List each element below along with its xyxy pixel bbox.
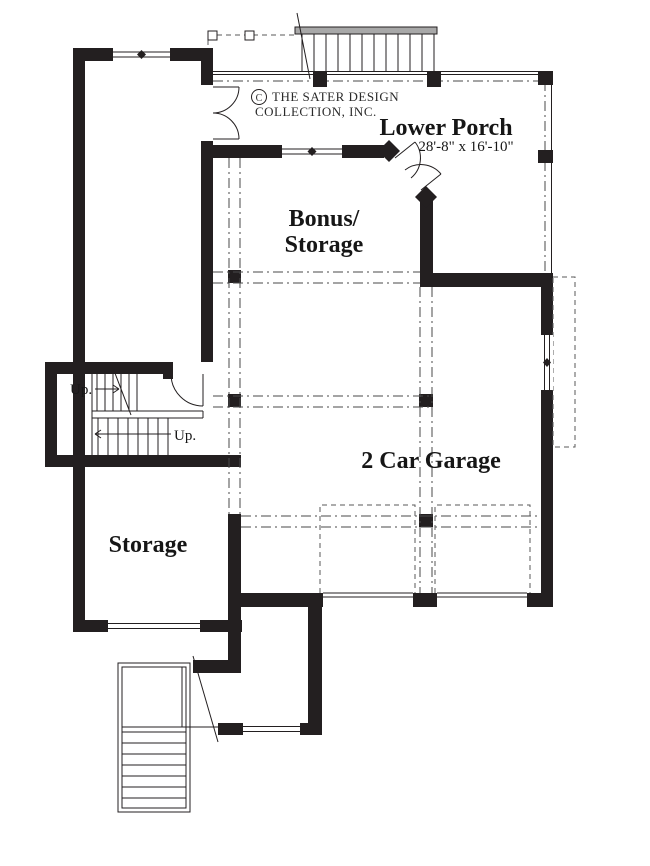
copyright-line2: COLLECTION, INC. [255,104,377,119]
garage-bay-outline [320,505,415,593]
porch-corner-post [538,71,553,85]
window-storage-bottom [108,620,200,632]
wall-end-diamond [415,186,437,208]
deck-post [245,31,254,40]
wall-end-diamond [378,140,400,162]
porch-post [538,150,553,163]
wall-porch-left-lower [201,141,213,362]
up-arrow-lower [95,430,171,438]
wall-garage-right-upper [541,273,553,335]
deck-dashed-outline [208,31,295,48]
wall-garage-bottom-left [228,593,323,607]
wall-porch-left-upper [201,48,213,85]
wall-garage-top [420,273,553,287]
up-arrow-upper [95,385,119,393]
deck-post [208,31,217,40]
window-wing-top [113,48,170,61]
stair-treads [122,743,186,798]
wall-storage-east [228,514,241,672]
floor-plan-drawing: Up. Up. C THE SATER DESIGN COLLECTION, I… [0,0,650,866]
porch-french-door [213,87,239,139]
columns [228,270,433,527]
lower-flight-treads [98,418,168,455]
interior-stairwell: Up. Up. [70,368,203,455]
stair-outline [118,663,190,812]
porch-post [313,71,327,87]
up-label-lower: Up. [174,428,196,444]
wall-bonus-top-right [342,145,384,158]
porch-post [427,71,441,87]
landing-rail [92,411,203,418]
wall-wing-left [73,48,85,632]
wall-garage-right-lower [541,390,553,607]
room-label-storage: Storage [109,532,188,558]
porch-entry-stair [295,13,437,79]
wall-stairwell-top [45,362,168,374]
copyright-symbol: C [256,93,263,104]
room-label-lower-porch: Lower Porch [379,115,512,141]
garage-bay-outline [435,505,530,593]
room-dims-lower-porch: 28'-8" x 16'-10" [418,139,513,155]
side-pad-outline [553,277,575,447]
copyright-line1: THE SATER DESIGN [272,89,399,104]
exterior-stair [118,663,218,812]
stair-break-line [297,13,310,79]
floor-plan-page: Up. Up. C THE SATER DESIGN COLLECTION, I… [0,0,650,866]
room-label-bonus-line1: Bonus/ [289,206,360,232]
room-label-bonus-line2: Storage [285,232,364,258]
wall-bonus-top-left [201,145,282,158]
wall-stairwell-bottom [45,455,241,467]
wall-vestibule-right [308,607,322,735]
room-label-garage: 2 Car Garage [361,448,501,474]
labels: C THE SATER DESIGN COLLECTION, INC. Lowe… [109,89,514,558]
column-grid-lines [213,158,541,593]
window-vestibule-bottom [243,723,300,735]
up-label-upper: Up. [70,382,92,398]
wall-garage-door-post [413,593,437,607]
window-garage-right [541,335,553,390]
wall-stairwell-left [45,362,57,467]
garage-door-bays [320,277,575,593]
window-bonus-top [282,145,342,158]
wall-stair-stub [193,660,241,673]
stairwell-door [171,374,203,406]
wall-vestibule-bottom-right [300,723,322,735]
wall-garage-bottom-right [527,593,553,607]
wall-vestibule-bottom-left [218,723,243,735]
stair-treads [302,34,434,71]
stair-edge-bar [295,27,437,34]
wall-storage-bottom-left [73,620,108,632]
